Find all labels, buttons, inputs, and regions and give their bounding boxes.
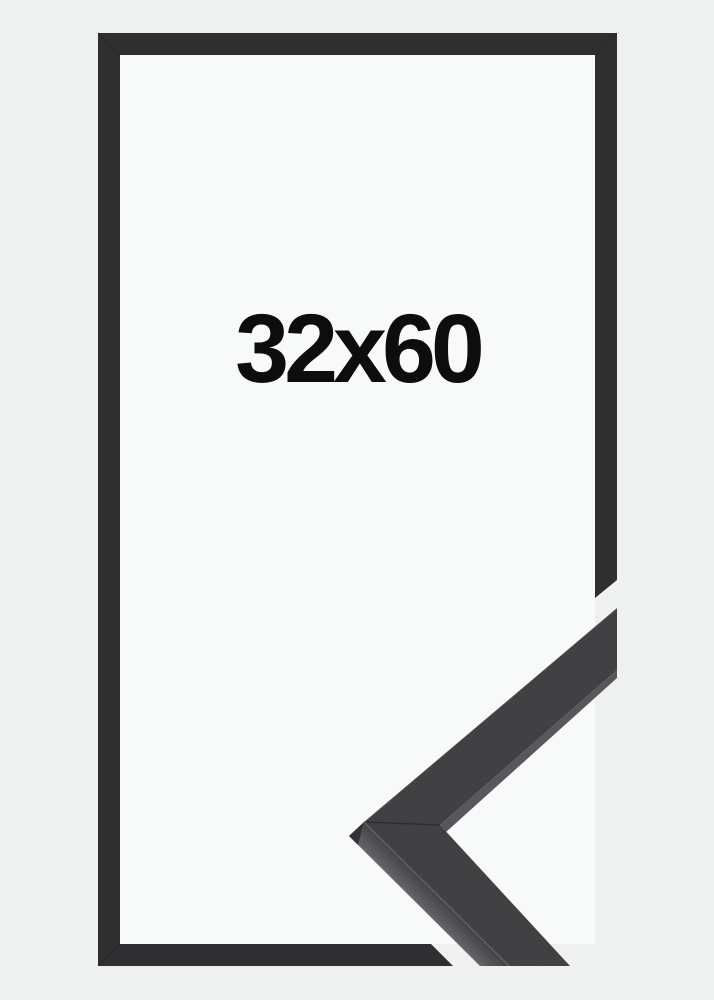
frame-opening — [120, 55, 595, 944]
frame-top-border — [98, 33, 617, 55]
frame-right-border — [595, 33, 617, 598]
size-label: 32x60 — [120, 300, 595, 397]
frame-size-product-image: 32x60 — [0, 0, 714, 1000]
frame-bottom-border — [98, 944, 453, 966]
frame-graphic — [0, 0, 714, 1000]
frame-left-border — [98, 33, 120, 966]
